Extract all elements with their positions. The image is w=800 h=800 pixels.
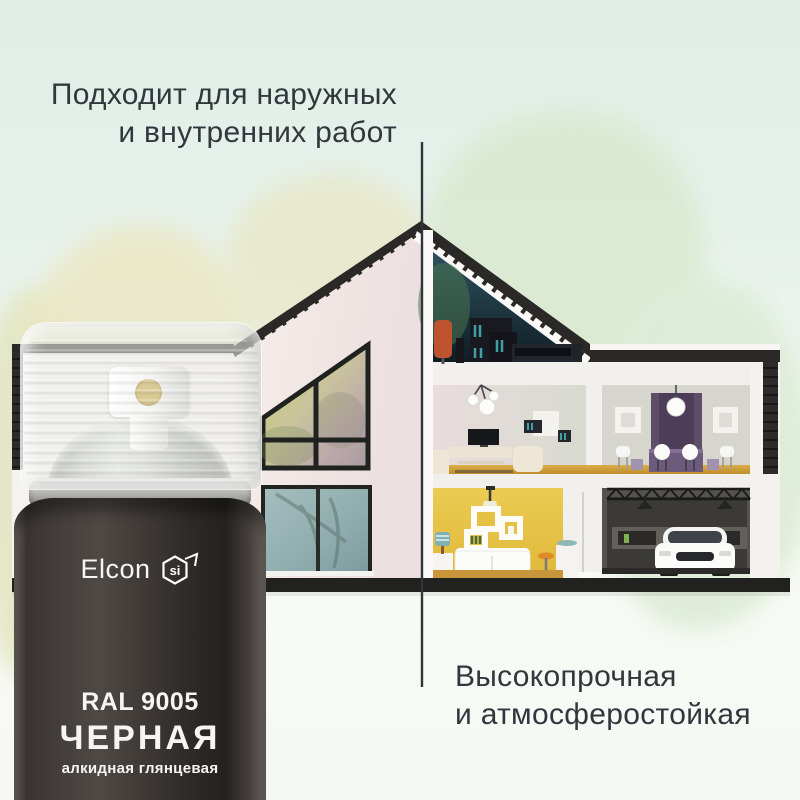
headline-suitability: Подходит для наружных и внутренних работ: [51, 76, 397, 152]
spray-can: Elcon si RAL 9005 ЧЕРНАЯ алкидная глянце…: [14, 318, 266, 800]
brand-logo: Elcon si: [14, 550, 266, 588]
ral-code: RAL 9005: [14, 688, 266, 717]
brand-badge-text: si: [169, 563, 180, 578]
headline-suitability-line2: и внутренних работ: [51, 114, 397, 152]
paint-color-name: ЧЕРНАЯ: [14, 719, 266, 758]
can-cap: [20, 322, 262, 490]
paint-finish: алкидная глянцевая: [14, 760, 266, 777]
cap-ridges: [24, 339, 258, 483]
can-body: Elcon si RAL 9005 ЧЕРНАЯ алкидная глянце…: [14, 498, 266, 800]
poster: Подходит для наружных и внутренних работ…: [0, 0, 800, 800]
headline-suitability-line1: Подходит для наружных: [51, 76, 397, 114]
headline-durability-line1: Высокопрочная: [455, 658, 751, 696]
brand-name: Elcon: [80, 554, 150, 585]
headline-durability-line2: и атмосферостойкая: [455, 696, 751, 734]
headline-durability: Высокопрочная и атмосферостойкая: [455, 658, 751, 734]
brand-badge-hexagon-icon: si: [158, 550, 200, 588]
